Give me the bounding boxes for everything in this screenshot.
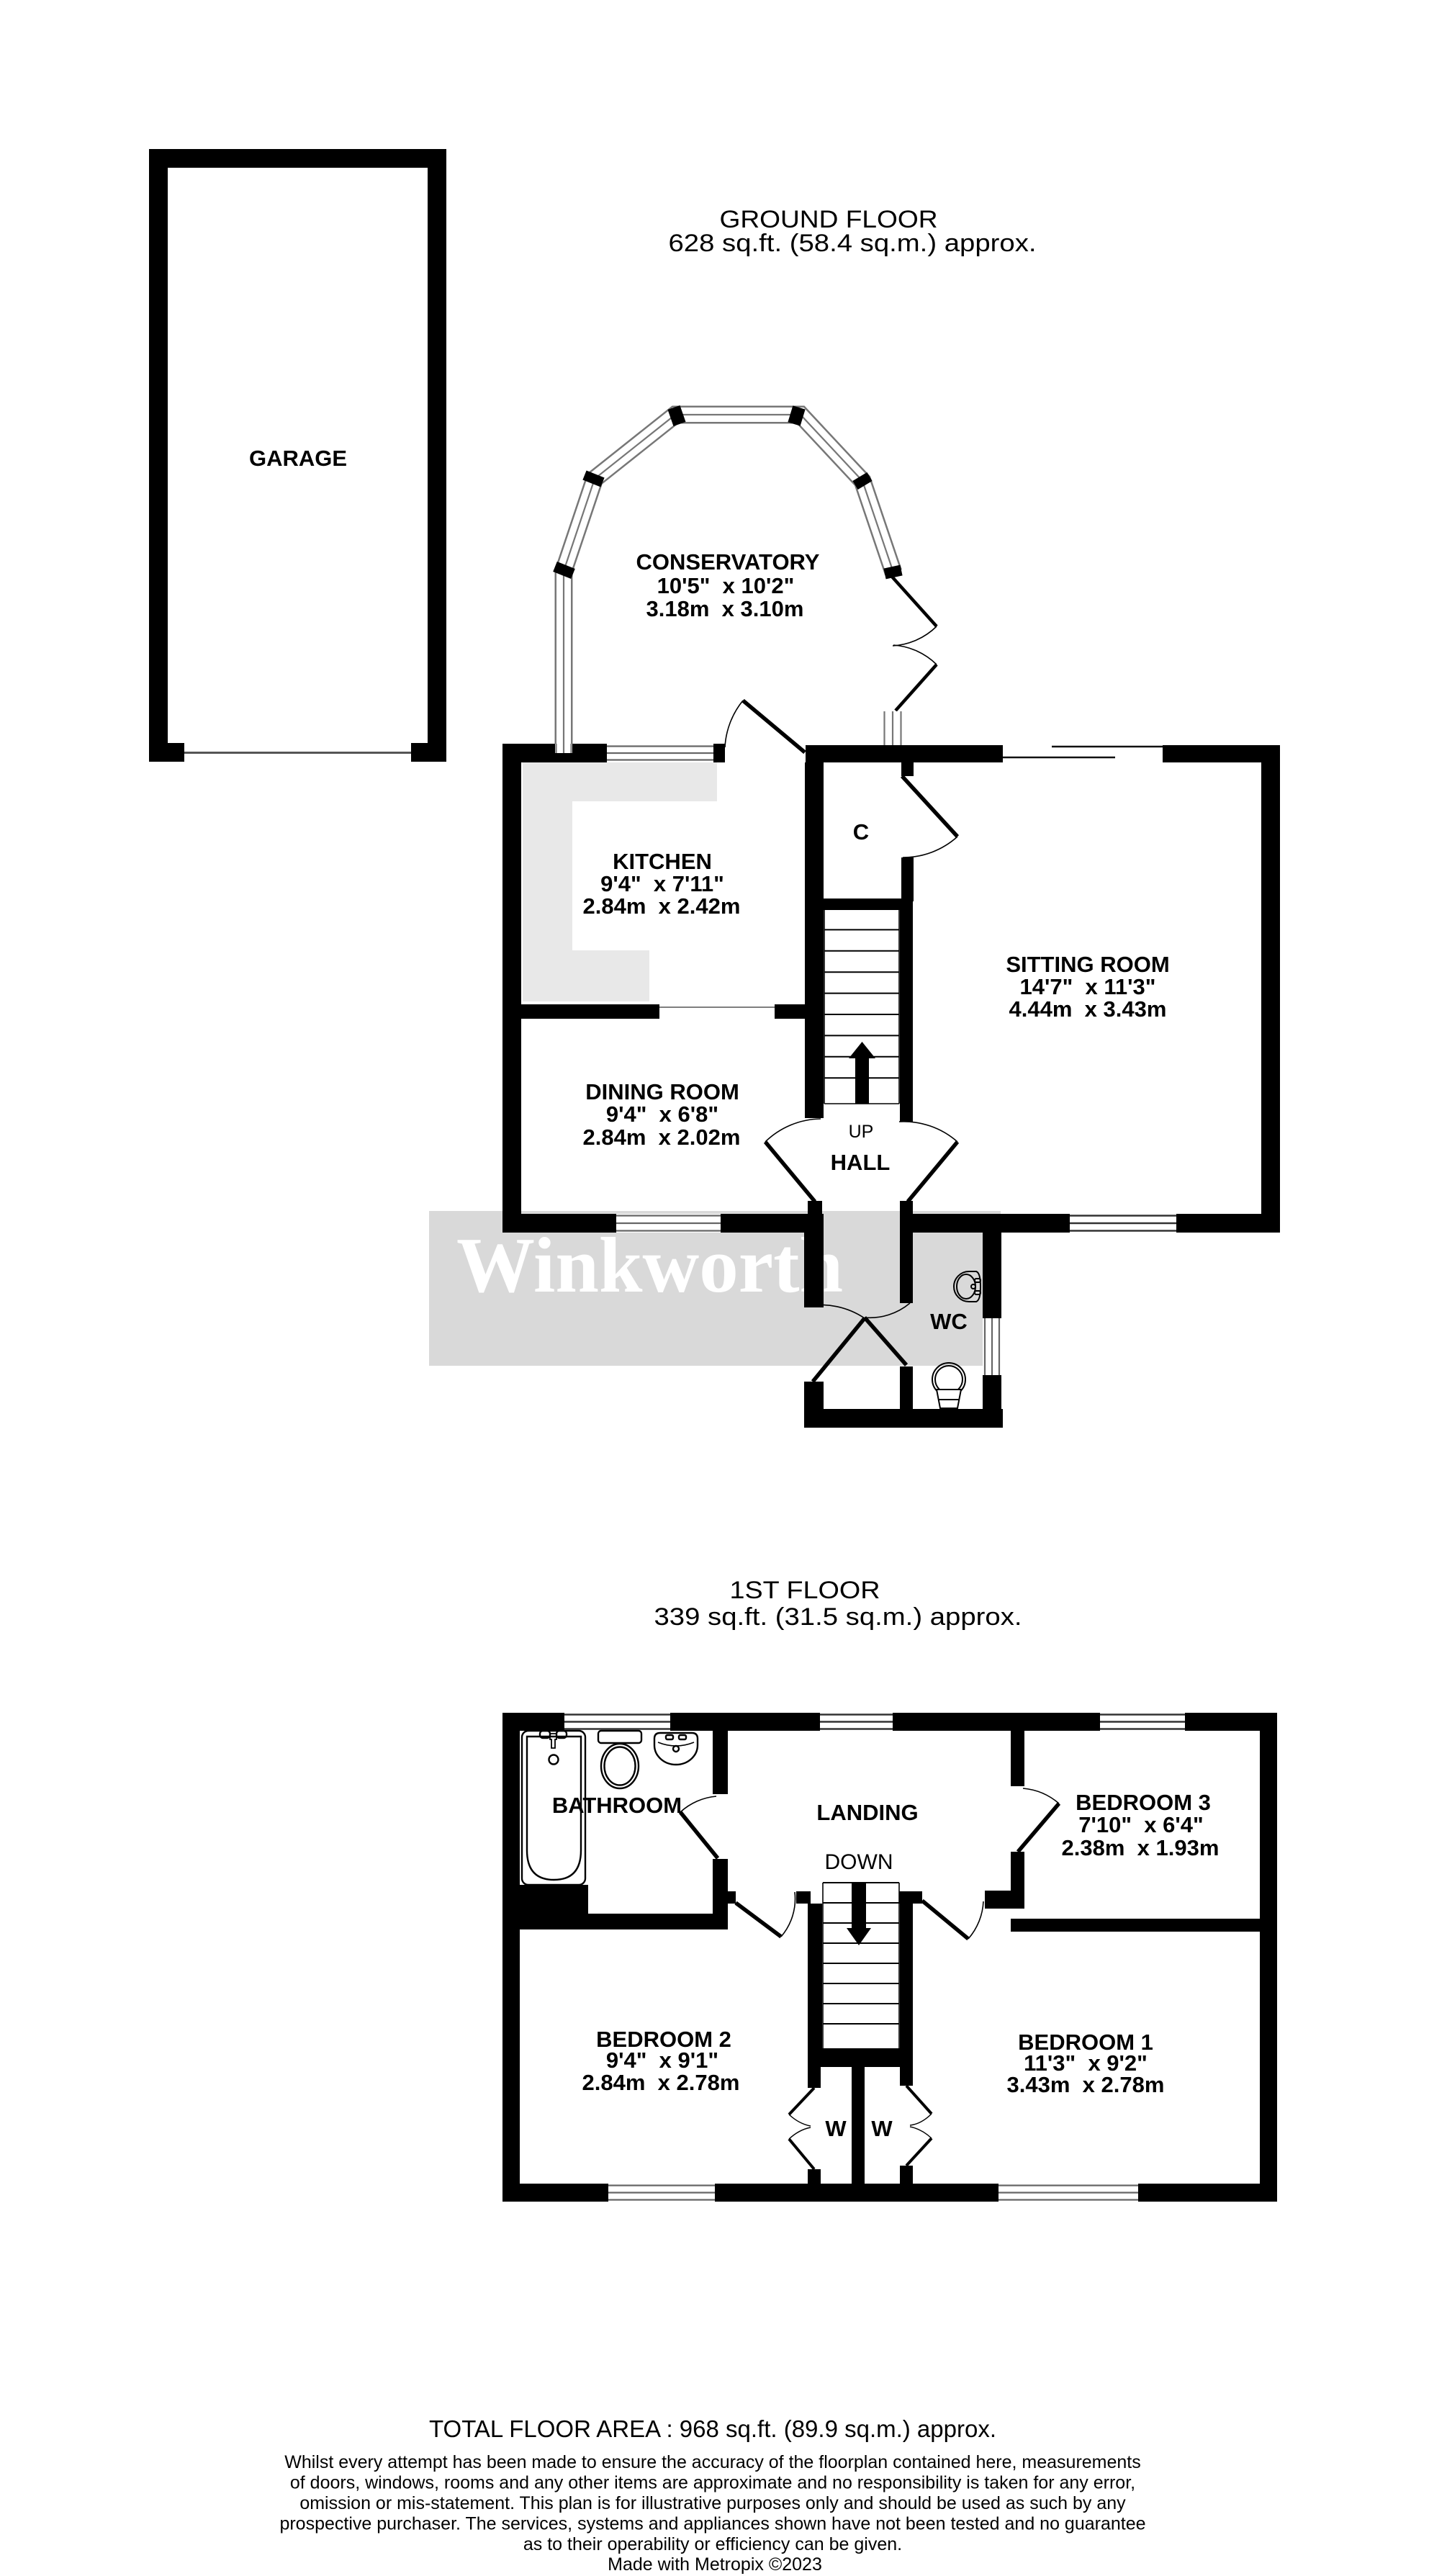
svg-text:omission or mis-statement. Thi: omission or mis-statement. This plan is … [299,2493,1126,2513]
svg-text:W: W [871,2116,893,2141]
svg-text:W: W [825,2116,847,2141]
svg-text:Made with Metropix ©2023: Made with Metropix ©2023 [608,2554,822,2575]
svg-text:2.84m x 2.78m: 2.84m x 2.78m [582,2070,740,2095]
svg-text:9'4" x 9'1": 9'4" x 9'1" [606,2048,718,2073]
svg-text:9'4" x 6'8": 9'4" x 6'8" [606,1102,718,1127]
svg-text:10'5" x 10'2": 10'5" x 10'2" [657,573,795,598]
svg-text:DOWN: DOWN [825,1850,893,1874]
svg-text:14'7" x 11'3": 14'7" x 11'3" [1020,974,1156,999]
svg-text:BEDROOM 3: BEDROOM 3 [1076,1790,1211,1815]
svg-text:2.84m x 2.42m: 2.84m x 2.42m [583,893,741,919]
svg-text:2.84m x 2.02m: 2.84m x 2.02m [583,1125,741,1150]
svg-text:DINING ROOM: DINING ROOM [585,1079,739,1104]
svg-text:GARAGE: GARAGE [249,446,347,471]
svg-text:7'10" x 6'4": 7'10" x 6'4" [1078,1812,1203,1837]
svg-text:3.43m x 2.78m: 3.43m x 2.78m [1007,2072,1165,2097]
svg-text:BATHROOM: BATHROOM [552,1793,682,1818]
svg-text:CONSERVATORY: CONSERVATORY [636,549,820,575]
svg-text:1ST FLOOR: 1ST FLOOR [730,1577,880,1604]
svg-text:LANDING: LANDING [816,1800,918,1825]
svg-text:339 sq.ft. (31.5 sq.m.) approx: 339 sq.ft. (31.5 sq.m.) approx. [654,1603,1022,1631]
svg-text:WC: WC [930,1309,968,1334]
svg-text:9'4" x 7'11": 9'4" x 7'11" [600,871,724,896]
svg-text:Whilst every attempt has been: Whilst every attempt has been made to en… [284,2452,1141,2472]
svg-text:as to their operability or eff: as to their operability or efficiency ca… [523,2534,902,2554]
svg-text:of doors, windows, rooms and a: of doors, windows, rooms and any other i… [290,2473,1135,2493]
svg-text:prospective purchaser. The ser: prospective purchaser. The services, sys… [279,2514,1145,2534]
svg-text:2.38m x 1.93m: 2.38m x 1.93m [1062,1835,1220,1860]
svg-text:628 sq.ft. (58.4 sq.m.) approx: 628 sq.ft. (58.4 sq.m.) approx. [669,230,1037,257]
svg-text:TOTAL FLOOR AREA : 968 sq.ft.: TOTAL FLOOR AREA : 968 sq.ft. (89.9 sq.m… [429,2415,996,2442]
svg-text:3.18m x 3.10m: 3.18m x 3.10m [646,596,804,621]
svg-text:HALL: HALL [831,1150,891,1175]
svg-text:UP: UP [849,1122,874,1142]
svg-text:Winkworth: Winkworth [456,1222,843,1309]
svg-text:KITCHEN: KITCHEN [613,849,712,874]
svg-text:4.44m x 3.43m: 4.44m x 3.43m [1009,996,1167,1022]
svg-text:C: C [853,819,869,845]
svg-text:SITTING ROOM: SITTING ROOM [1006,952,1169,977]
